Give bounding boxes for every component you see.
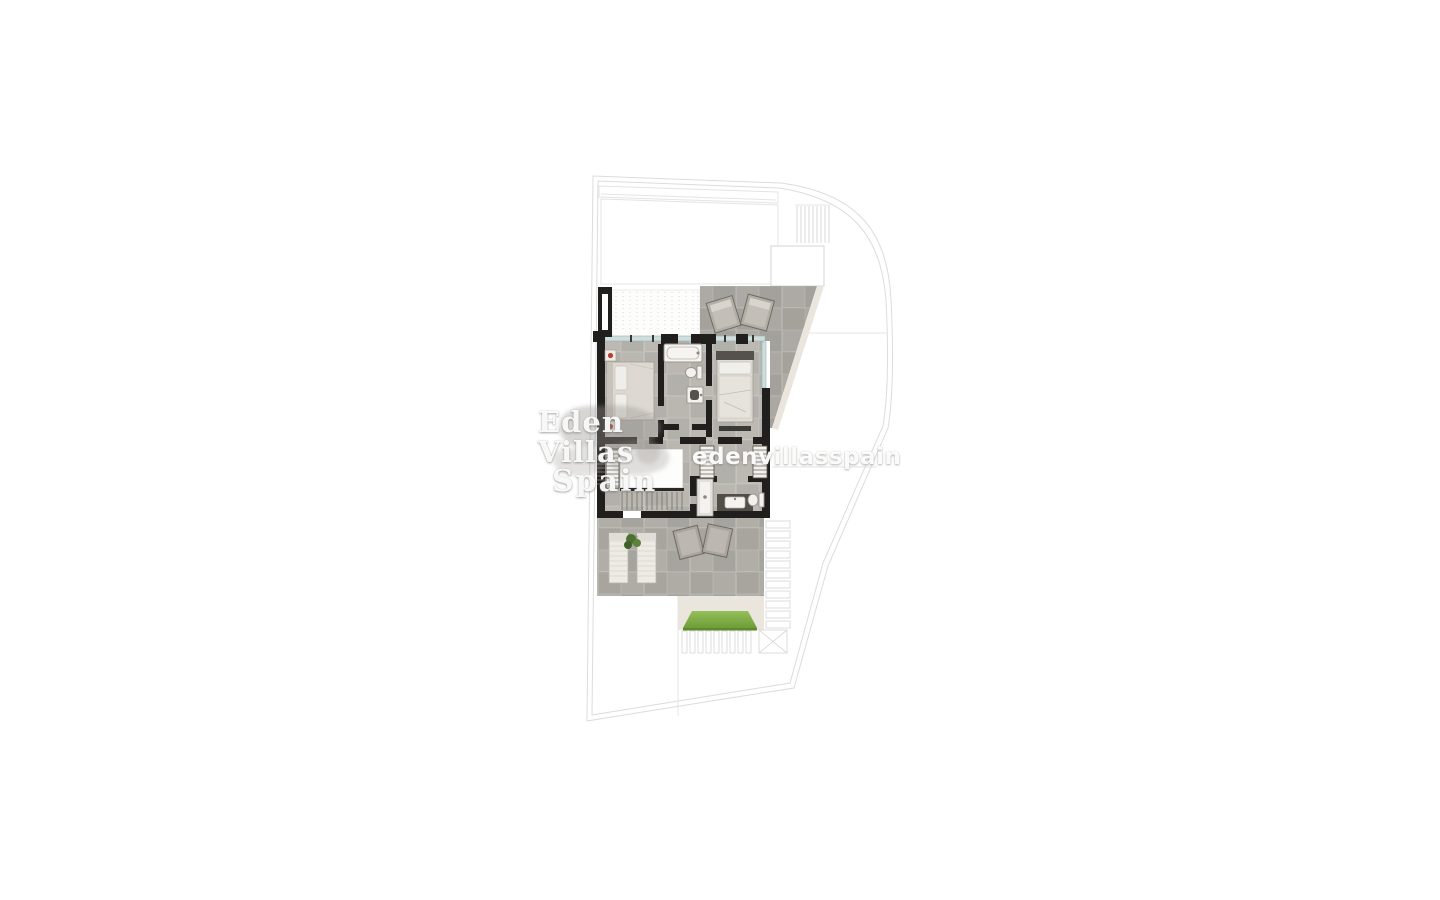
floor-plan-drawing — [0, 0, 1440, 900]
toilet-bottom — [748, 493, 764, 507]
deck-chair-2 — [702, 524, 732, 558]
deck-lounger-1 — [609, 533, 628, 583]
shower — [697, 479, 713, 516]
pillar-window — [602, 294, 608, 330]
pergola-slats — [682, 631, 751, 653]
washbasin-top — [687, 387, 703, 403]
void-grid-area — [612, 290, 700, 337]
toilet-top — [686, 366, 703, 379]
wardrobe-right — [753, 446, 767, 478]
grass-patch — [683, 611, 757, 631]
exterior-stairs-top-hatch — [795, 205, 831, 243]
roof-main-outline — [601, 199, 778, 284]
side-steps-ladder — [766, 521, 790, 628]
bed-bench — [719, 426, 751, 431]
wardrobe-left — [700, 446, 714, 478]
floor-plan-canvas: Eden Villas Spain edenvillasspain — [0, 0, 1440, 900]
stair-railing — [620, 488, 684, 491]
bathtub — [664, 344, 702, 362]
vanity-sink — [717, 494, 753, 511]
stair-landing — [771, 246, 824, 286]
bedroom-right-bed — [716, 351, 754, 431]
roof-strip-inner-line — [601, 194, 776, 200]
ramp-box — [759, 630, 787, 653]
